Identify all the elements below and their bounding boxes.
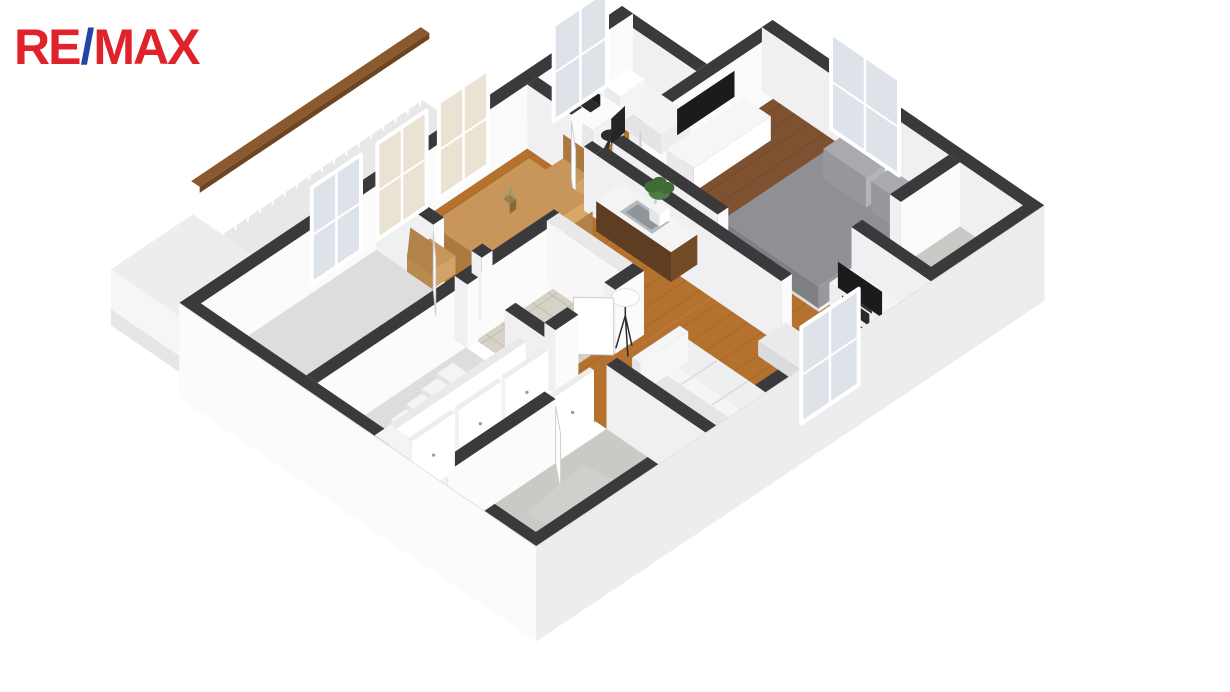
wall xyxy=(455,269,478,349)
bathroom-door xyxy=(574,297,614,355)
floorplan-3d-render xyxy=(0,0,1230,692)
floorplan-page: RE/MAX xyxy=(0,0,1230,692)
